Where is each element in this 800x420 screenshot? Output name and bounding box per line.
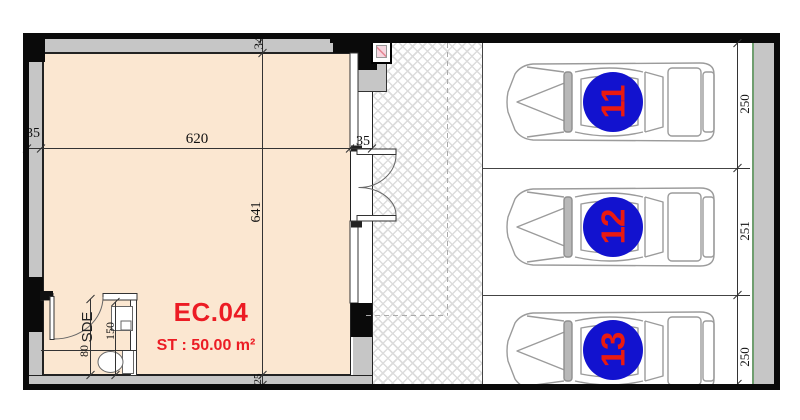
dim-room-width: 620: [175, 131, 219, 147]
stall-number-badge: 13: [583, 320, 643, 380]
unit-code-label: EC.04: [156, 297, 266, 328]
dim-stall-11-depth: 250: [732, 90, 756, 118]
dim-room-height: 641: [244, 197, 270, 227]
stall-number: 11: [594, 86, 632, 119]
dim-bottom-offset: 25: [249, 368, 267, 390]
stall-number: 12: [594, 210, 632, 245]
parking-stall-12: 12: [483, 168, 752, 295]
wall-bottom: [29, 375, 372, 384]
stall-number-badge: 11: [583, 72, 643, 132]
column-mid-left: [26, 277, 43, 332]
floor-plan-drawing: 11 12: [0, 0, 800, 420]
stall-number: 13: [594, 333, 632, 368]
dim-wall-top: 34: [249, 31, 267, 55]
dim-bath-door: 80: [74, 340, 94, 362]
column-top-left: [26, 36, 45, 62]
shaft-detail-inner: [376, 45, 387, 58]
wall-top: [43, 39, 335, 53]
dim-wall-left: 35: [23, 126, 43, 142]
stall-number-badge: 12: [583, 197, 643, 257]
parking-stall-13: 13: [483, 295, 752, 384]
wall-top-right-bar: [330, 36, 774, 43]
dim-stall-12-depth: 251: [732, 217, 756, 245]
unit-area-label: ST : 50.00 m²: [131, 337, 281, 355]
walkway-paving: [372, 43, 482, 384]
dim-stall-13-depth: 250: [732, 343, 756, 371]
bathroom-label: SDE: [74, 314, 100, 340]
parking-stall-11: 11: [483, 43, 752, 168]
dim-bath-width: 150: [98, 320, 122, 342]
dim-wall-right: 35: [352, 134, 374, 150]
